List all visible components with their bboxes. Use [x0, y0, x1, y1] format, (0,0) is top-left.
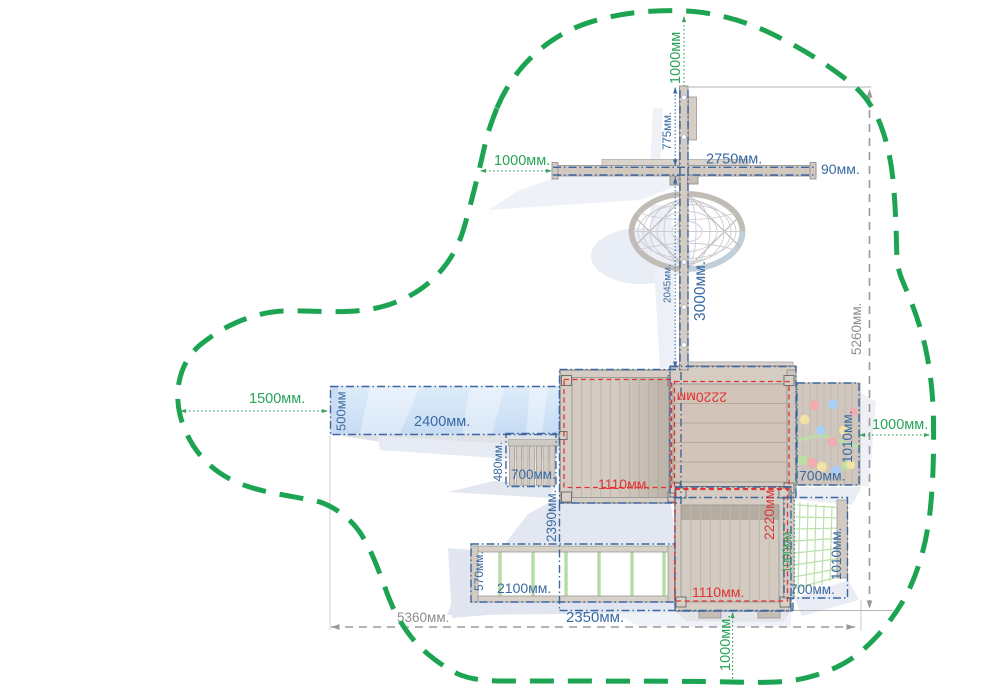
svg-text:1500мм.: 1500мм. — [249, 391, 305, 407]
svg-text:570мм.: 570мм. — [472, 551, 486, 591]
svg-text:700мм.: 700мм. — [790, 582, 835, 597]
svg-text:1000мм: 1000мм — [668, 32, 684, 84]
svg-text:2220мм: 2220мм — [677, 390, 727, 406]
svg-text:1000мм.: 1000мм. — [782, 528, 794, 573]
svg-text:700мм.: 700мм. — [799, 468, 846, 484]
svg-text:1010мм.: 1010мм. — [829, 528, 844, 580]
svg-text:480мм.: 480мм. — [491, 442, 505, 482]
svg-text:3000мм.: 3000мм. — [692, 261, 709, 321]
svg-text:5360мм.: 5360мм. — [397, 610, 449, 625]
svg-text:775мм.: 775мм. — [662, 112, 674, 150]
svg-text:1000мм.: 1000мм. — [872, 417, 928, 433]
svg-text:1000мм.: 1000мм. — [494, 153, 550, 169]
svg-text:1110мм.: 1110мм. — [598, 476, 650, 492]
svg-text:700мм.: 700мм. — [511, 467, 556, 482]
svg-text:2100мм.: 2100мм. — [497, 580, 551, 596]
svg-text:90мм.: 90мм. — [821, 161, 860, 177]
svg-text:2220мм.: 2220мм. — [761, 486, 777, 540]
svg-text:2390мм.: 2390мм. — [544, 490, 559, 542]
svg-text:5260мм.: 5260мм. — [849, 303, 864, 355]
svg-text:2350мм.: 2350мм. — [566, 609, 624, 626]
svg-text:500мм: 500мм — [334, 391, 349, 431]
svg-text:2750мм.: 2750мм. — [706, 152, 762, 168]
svg-text:2045мм.: 2045мм. — [663, 264, 674, 303]
svg-text:2400мм.: 2400мм. — [414, 414, 470, 430]
svg-text:1010мм.: 1010мм. — [840, 411, 855, 463]
svg-text:1000мм.: 1000мм. — [718, 615, 734, 671]
svg-text:1110мм.: 1110мм. — [692, 584, 744, 600]
